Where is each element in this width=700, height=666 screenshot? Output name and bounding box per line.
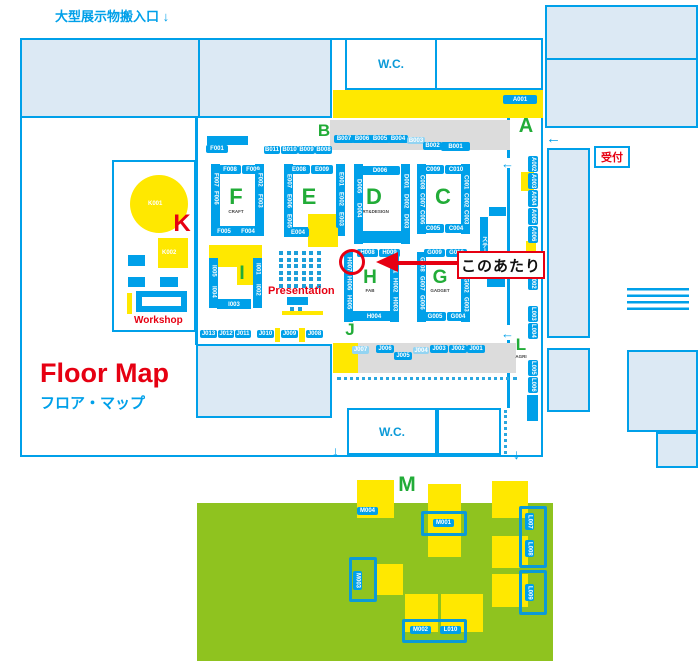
seat-dot <box>294 264 298 268</box>
exit-arrow-down-2: ↓ <box>513 447 520 461</box>
building-bottom-right-1 <box>627 350 698 432</box>
booth-label-H004: H004 <box>362 312 386 321</box>
reception-label: 受付 <box>601 149 623 165</box>
booth-label-D001: D001 <box>401 172 410 190</box>
zone-letter-M: M <box>387 474 427 495</box>
carry-in-entrance-label: 大型展示物搬入口 ↓ <box>55 10 169 23</box>
seat-dot <box>309 277 313 281</box>
booth-label-B004: B004 <box>388 135 408 143</box>
around-here-label: このあたり <box>461 255 541 276</box>
booth-label-L003: L003 <box>528 306 538 322</box>
zone-letter-J: J <box>330 321 370 338</box>
stage-table-top <box>489 207 506 216</box>
booth-label-F007: F007 <box>211 173 220 186</box>
seat-dot <box>279 258 283 262</box>
f001-bar <box>207 136 248 145</box>
booth-label-C001: C001 <box>461 174 470 191</box>
booth-label-J005: J005 <box>394 352 412 360</box>
booth-label-D005: D005 <box>354 176 363 196</box>
presentation-label: Presentation <box>268 286 335 297</box>
seat-dot <box>317 251 321 255</box>
booth-label-G009: G009 <box>424 249 445 257</box>
k-table-1 <box>128 255 145 266</box>
booth-label-H003: H003 <box>390 296 399 313</box>
booth-label-J002: J002 <box>449 345 467 353</box>
booth-label-H005: H005 <box>344 294 353 311</box>
room-bottom-left-block <box>196 344 332 418</box>
booth-label-L010: L010 <box>440 626 461 634</box>
booth-label-E004: E004 <box>287 228 309 237</box>
zone-letter-K: K <box>162 212 202 236</box>
j-yellow-sliver-1 <box>275 328 280 342</box>
booth-label-F008: F008 <box>219 165 241 174</box>
building-right-tall-2 <box>547 348 590 412</box>
booth-label-F006: F006 <box>211 188 220 207</box>
zone-letter-F: FCRAFT <box>216 186 256 215</box>
booth-label-L009: L009 <box>525 584 534 601</box>
booth-label-B002: B002 <box>423 142 442 150</box>
stairs-stripes <box>627 288 689 313</box>
seat-dot <box>302 251 306 255</box>
l-zone-blue-bar <box>527 395 538 421</box>
around-here-box: このあたり <box>457 251 545 279</box>
seat-dot <box>294 271 298 275</box>
booth-label-J006: J006 <box>376 345 394 353</box>
seat-dot <box>287 277 291 281</box>
booth-label-H006: H006 <box>344 275 353 292</box>
booth-label-D003: D003 <box>401 212 410 230</box>
booth-label-A006: A006 <box>528 226 538 243</box>
booth-label-H002: H002 <box>390 277 399 294</box>
booth-label-A004: A004 <box>528 190 538 207</box>
booth-label-G004: G004 <box>447 312 469 321</box>
seat-dot <box>317 264 321 268</box>
booth-label-L007: L007 <box>525 513 534 530</box>
zone-sublabel-H: FAB <box>350 289 390 294</box>
booth-label-G003: G003 <box>461 296 470 313</box>
seat-dot <box>309 264 313 268</box>
booth-label-M003: M003 <box>353 571 362 590</box>
booth-label-D002: D002 <box>401 192 410 210</box>
booth-label-J011: J011 <box>235 330 251 338</box>
booth-label-I005: I005 <box>209 262 218 279</box>
block-d-bottom-bar <box>356 231 401 243</box>
page-title-ja: フロア・マップ <box>40 396 145 411</box>
k002-text: K002 <box>162 250 176 256</box>
presentation-dot-1 <box>290 307 294 311</box>
seat-dot <box>294 258 298 262</box>
m003-block <box>377 564 403 595</box>
k-table-2 <box>128 277 145 287</box>
zone-sublabel-L: AGRI <box>501 355 541 360</box>
booth-label-J010: J010 <box>257 330 274 338</box>
exit-arrow-down-1: ↓ <box>332 444 339 458</box>
seat-dot <box>287 251 291 255</box>
booth-label-B001: B001 <box>441 142 470 151</box>
room-top-left-2 <box>198 38 332 118</box>
booth-label-I002: I002 <box>253 281 262 298</box>
entrance-arrow-left-1: ← <box>546 131 561 146</box>
seat-dot <box>302 264 306 268</box>
booth-label-E003: E003 <box>336 210 345 228</box>
room-top-right-inner <box>435 38 543 90</box>
k001-text: K001 <box>148 201 162 207</box>
booth-label-M001: M001 <box>433 519 454 527</box>
booth-label-L008: L008 <box>525 540 534 557</box>
booth-label-C004: C004 <box>445 224 467 233</box>
highlight-circle <box>339 249 365 275</box>
room-top-left-1 <box>20 38 200 118</box>
booth-label-I003: I003 <box>221 300 247 309</box>
booth-label-J009: J009 <box>281 330 298 338</box>
zone-sublabel-G: GADGET <box>420 289 460 294</box>
zone-letter-A: A <box>506 116 546 136</box>
seat-dot <box>317 271 321 275</box>
booth-label-F005: F005 <box>213 227 235 236</box>
booth-label-C005: C005 <box>422 224 444 233</box>
page-title: Floor Map <box>40 360 169 387</box>
seat-dot <box>309 271 313 275</box>
seat-dot <box>317 258 321 262</box>
booth-label-C009: C009 <box>422 165 444 174</box>
wc-top-label: W.C. <box>347 57 435 71</box>
booth-label-B009: B009 <box>298 146 315 154</box>
building-bottom-right-2 <box>656 432 698 468</box>
booth-label-C002: C002 <box>461 192 470 209</box>
wc-bottom-label: W.C. <box>349 425 435 439</box>
seat-dot <box>302 258 306 262</box>
booth-label-E006: E006 <box>284 192 293 210</box>
building-top-right-divider <box>547 58 696 60</box>
booth-label-B007: B007 <box>334 135 354 143</box>
seat-dot <box>317 277 321 281</box>
booth-label-B011: B011 <box>264 146 280 154</box>
entrance-arrow-left-2: ← <box>501 157 514 170</box>
dotted-divider-vertical <box>504 410 507 454</box>
highlight-arrow-line <box>398 261 458 265</box>
booth-label-J012: J012 <box>218 330 234 338</box>
stage-table-bottom <box>487 278 505 287</box>
booth-label-B010: B010 <box>281 146 298 154</box>
booth-label-M002: M002 <box>410 626 431 634</box>
wc-room-top: W.C. <box>345 38 437 90</box>
dotted-divider-horizontal <box>337 377 517 380</box>
booth-label-F003: F003 <box>255 191 264 210</box>
block-e-yellow <box>308 214 338 247</box>
booth-label-C008: C008 <box>417 174 426 191</box>
booth-label-J001: J001 <box>467 345 485 353</box>
booth-label-B005: B005 <box>370 135 390 143</box>
booth-label-A001: A001 <box>503 95 537 104</box>
seat-dot <box>302 271 306 275</box>
presentation-seat-dots <box>279 251 321 288</box>
building-top-right <box>545 5 698 128</box>
j-yellow-sliver-2 <box>299 328 305 342</box>
booth-label-L005: L005 <box>528 360 538 376</box>
booth-label-G007: G007 <box>417 275 426 292</box>
seat-dot <box>309 258 313 262</box>
seat-dot <box>287 264 291 268</box>
workshop-yellow-strip <box>127 293 132 314</box>
seat-dot <box>287 271 291 275</box>
booth-label-M004: M004 <box>357 507 378 515</box>
booth-label-J013: J013 <box>200 330 217 338</box>
reception-box: 受付 <box>594 146 630 168</box>
booth-label-L004: L004 <box>528 323 538 339</box>
booth-label-E001: E001 <box>336 170 345 188</box>
booth-label-D004: D004 <box>354 200 363 220</box>
zone-sublabel-F: CRAFT <box>216 210 256 215</box>
booth-label-C007: C007 <box>417 192 426 209</box>
floor-map: 大型展示物搬入口 ↓ W.C. W.C. 受付 K001 K002 <box>0 0 700 666</box>
booth-label-E009: E009 <box>311 165 333 174</box>
highlight-arrow-head <box>376 252 398 272</box>
presentation-podium <box>287 297 308 305</box>
booth-label-I001: I001 <box>253 260 262 277</box>
zone-letter-E: E <box>289 186 329 208</box>
seat-dot <box>279 277 283 281</box>
k-table-3 <box>160 277 178 287</box>
booth-label-D006: D006 <box>360 166 400 175</box>
presentation-yellow-bar <box>282 311 323 315</box>
hall-right-wall-2 <box>507 168 510 325</box>
seat-dot <box>279 251 283 255</box>
booth-label-B008: B008 <box>315 146 332 154</box>
booth-label-J003: J003 <box>430 345 448 353</box>
seat-dot <box>279 264 283 268</box>
seat-dot <box>294 251 298 255</box>
booth-label-J004: J004 <box>413 347 429 354</box>
zone-letter-C: C <box>423 186 463 208</box>
booth-label-J008: J008 <box>306 330 323 338</box>
zone-letter-G: GGADGET <box>420 268 460 294</box>
booth-label-F002: F002 <box>255 170 264 189</box>
booth-label-G005: G005 <box>424 312 446 321</box>
wc-room-bottom: W.C. <box>347 408 437 455</box>
booth-label-E007: E007 <box>284 172 293 190</box>
workshop-label: Workshop <box>134 316 183 326</box>
booth-label-L006: L006 <box>528 377 538 393</box>
booth-label-I004: I004 <box>209 283 218 300</box>
seat-dot <box>294 277 298 281</box>
booth-label-G002: G002 <box>461 277 470 294</box>
seat-dot <box>309 251 313 255</box>
booth-label-A002: A002 <box>528 156 538 172</box>
entrance-arrow-left-3: ← <box>501 327 514 340</box>
booth-label-A003: A003 <box>528 173 538 189</box>
seat-dot <box>287 258 291 262</box>
booth-label-B006: B006 <box>352 135 372 143</box>
building-right-tall <box>547 148 590 338</box>
room-bottom-inner <box>437 408 501 455</box>
booth-label-F004: F004 <box>237 227 259 236</box>
seat-dot <box>279 271 283 275</box>
presentation-dot-2 <box>298 307 302 311</box>
seat-dot <box>302 277 306 281</box>
booth-label-F001: F001 <box>206 145 228 153</box>
booth-label-E002: E002 <box>336 190 345 208</box>
booth-label-G006: G006 <box>417 294 426 311</box>
booth-label-J007: J007 <box>352 346 369 354</box>
booth-label-A005: A005 <box>528 208 538 225</box>
booth-label-C010: C010 <box>445 165 467 174</box>
workshop-table <box>136 291 187 312</box>
